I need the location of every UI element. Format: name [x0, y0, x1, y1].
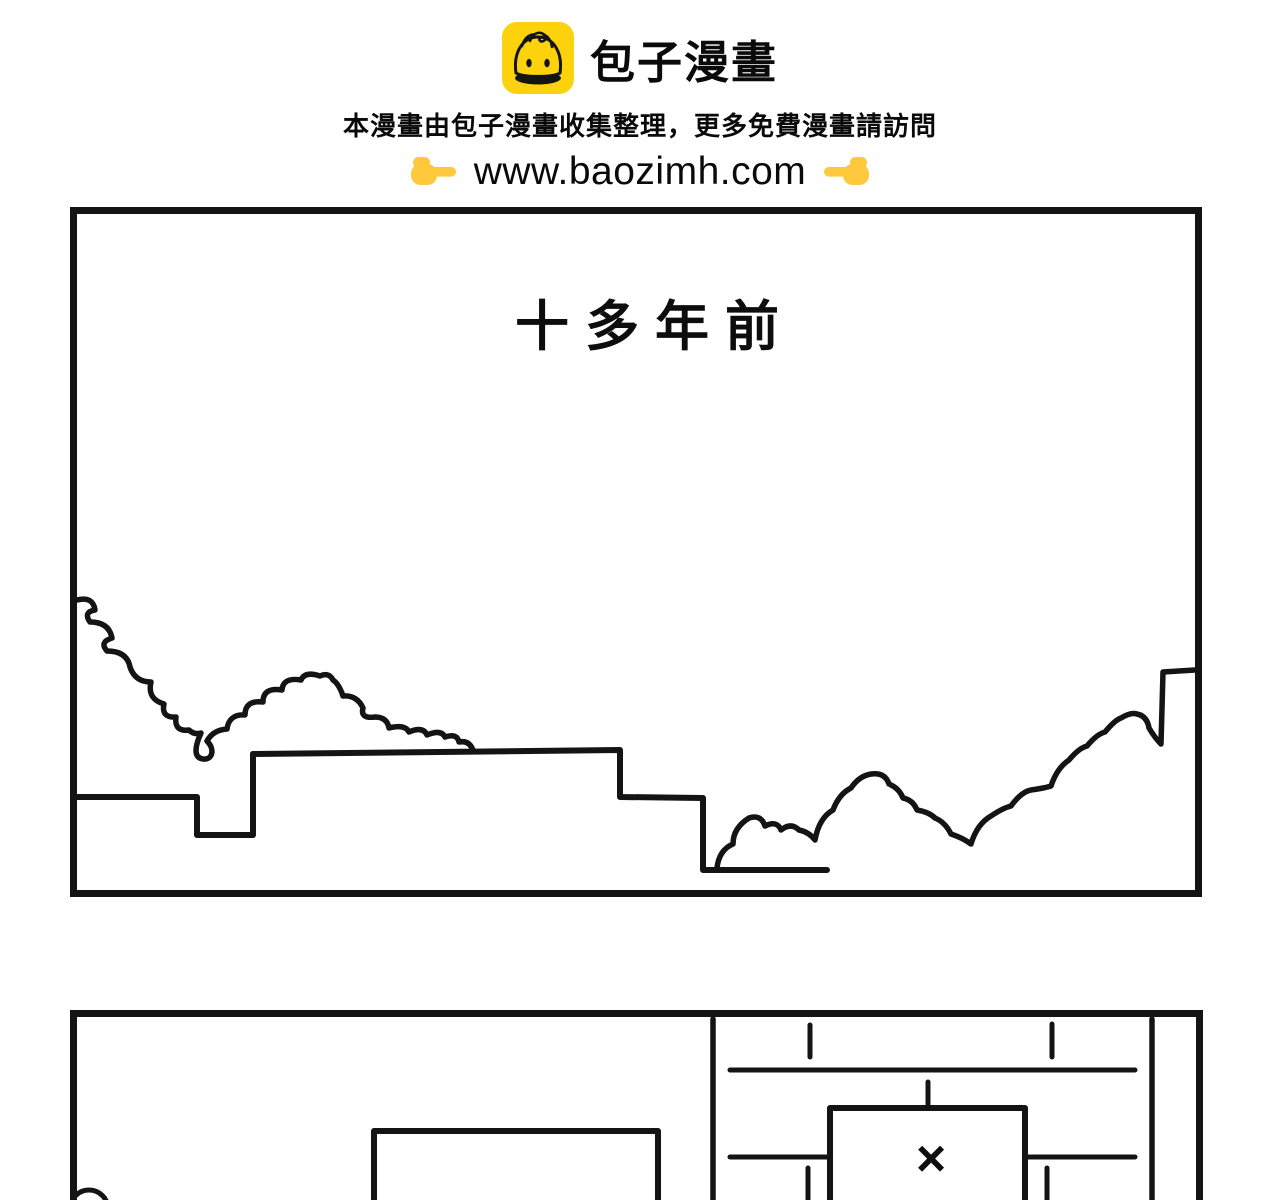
brand-row: 包子漫畫	[0, 22, 1280, 94]
skyline-drawing	[77, 214, 1195, 890]
comic-panel-2: ×	[70, 1010, 1203, 1200]
door-x-mark: ×	[899, 1129, 963, 1189]
baozi-logo-icon	[502, 22, 574, 94]
collection-notice: 本漫畫由包子漫畫收集整理，更多免費漫畫請訪問	[0, 106, 1280, 143]
pointing-left-hand-icon	[822, 154, 870, 190]
pointing-right-hand-icon	[410, 154, 458, 190]
branding-header: 包子漫畫 本漫畫由包子漫畫收集整理，更多免費漫畫請訪問 www.baozimh.…	[0, 0, 1280, 194]
site-title: 包子漫畫	[590, 26, 778, 91]
website-url[interactable]: www.baozimh.com	[474, 150, 807, 194]
head-arc-path	[77, 1190, 108, 1200]
window-frame-path	[374, 1131, 658, 1200]
room-drawing	[77, 1017, 1196, 1200]
website-link-row: www.baozimh.com	[0, 150, 1280, 194]
buildings-path	[77, 750, 827, 870]
comic-panel-1: 十多年前	[70, 207, 1202, 897]
comic-reader-page: 包子漫畫 本漫畫由包子漫畫收集整理，更多免費漫畫請訪問 www.baozimh.…	[0, 0, 1280, 1200]
left-bushes-path	[77, 599, 473, 759]
right-bushes-path	[717, 670, 1195, 868]
